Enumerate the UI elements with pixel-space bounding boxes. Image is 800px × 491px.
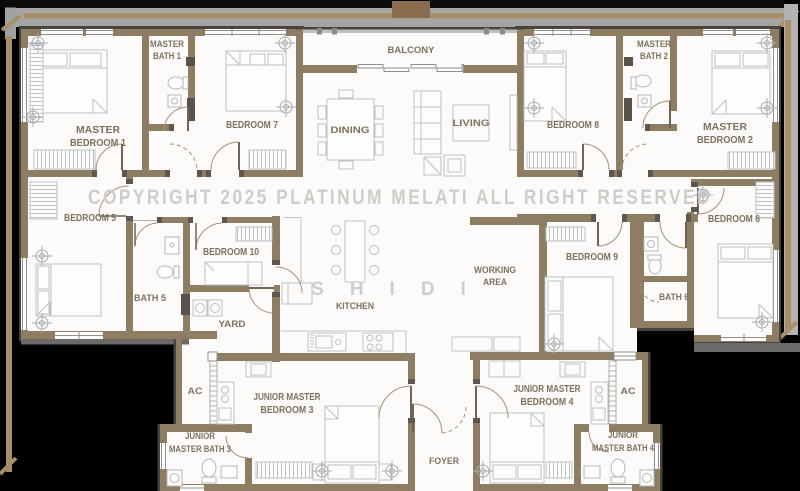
svg-text:LIVING: LIVING (453, 118, 490, 129)
svg-text:BATH 1: BATH 1 (153, 51, 181, 61)
svg-text:FOYER: FOYER (429, 456, 459, 466)
svg-text:BEDROOM 9: BEDROOM 9 (566, 252, 618, 263)
svg-text:BEDROOM 7: BEDROOM 7 (226, 120, 278, 131)
svg-text:BATH 6: BATH 6 (659, 292, 689, 302)
svg-text:BEDROOM 10: BEDROOM 10 (203, 247, 259, 258)
svg-text:JUNIOR: JUNIOR (185, 431, 215, 441)
svg-text:BEDROOM 1: BEDROOM 1 (70, 138, 126, 149)
svg-text:BEDROOM 8: BEDROOM 8 (547, 120, 599, 131)
svg-text:BEDROOM 2: BEDROOM 2 (697, 135, 753, 146)
svg-text:JUNIOR MASTER: JUNIOR MASTER (514, 384, 582, 395)
svg-text:AC: AC (621, 386, 637, 396)
svg-text:MASTER: MASTER (637, 39, 671, 49)
svg-text:MASTER: MASTER (76, 125, 121, 136)
svg-text:BEDROOM 4: BEDROOM 4 (521, 397, 574, 408)
svg-text:BALCONY: BALCONY (388, 45, 436, 56)
svg-text:BATH 5: BATH 5 (134, 293, 166, 303)
svg-text:JUNIOR: JUNIOR (608, 430, 638, 440)
svg-text:WORKING: WORKING (474, 265, 516, 275)
svg-text:AC: AC (188, 386, 204, 396)
svg-text:BEDROOM 5: BEDROOM 5 (64, 213, 116, 224)
svg-text:BEDROOM 6: BEDROOM 6 (708, 214, 760, 225)
svg-text:KITCHEN: KITCHEN (336, 301, 374, 311)
svg-text:MASTER: MASTER (703, 122, 748, 133)
svg-text:MASTER BATH 4: MASTER BATH 4 (592, 443, 654, 453)
svg-text:COPYRIGHT 2025 PLATINUM MELATI: COPYRIGHT 2025 PLATINUM MELATI ALL RIGHT… (88, 186, 712, 209)
svg-text:BATH 2: BATH 2 (640, 51, 668, 61)
svg-text:MASTER BATH 3: MASTER BATH 3 (169, 444, 231, 454)
svg-text:BEDROOM 3: BEDROOM 3 (261, 405, 314, 416)
svg-text:JUNIOR MASTER: JUNIOR MASTER (254, 392, 322, 403)
svg-text:SHIDI: SHIDI (311, 279, 492, 300)
svg-text:YARD: YARD (219, 319, 247, 329)
svg-text:MASTER: MASTER (150, 39, 184, 49)
svg-text:DINING: DINING (331, 125, 370, 136)
